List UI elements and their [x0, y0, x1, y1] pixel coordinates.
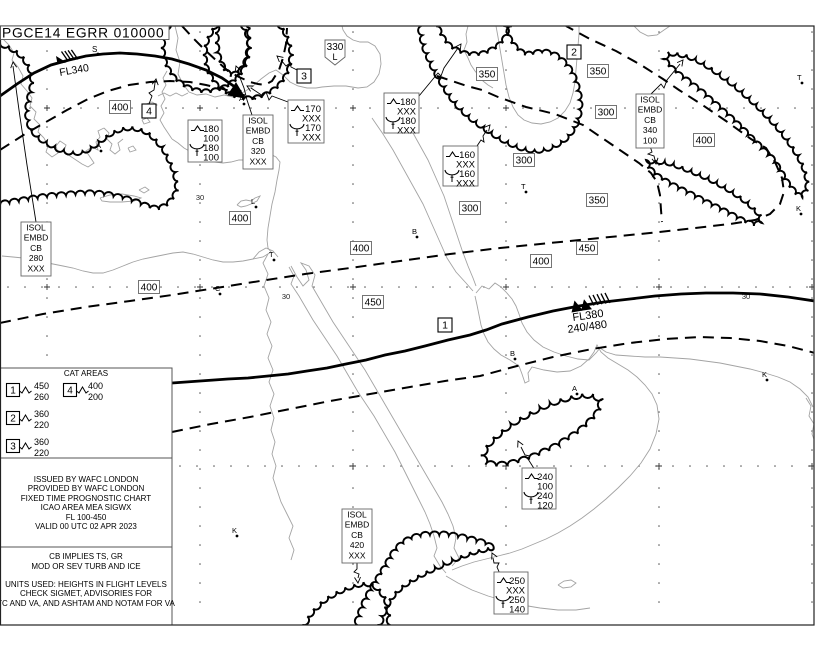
svg-text:ISSUED BY WAFC LONDON: ISSUED BY WAFC LONDON — [34, 475, 139, 484]
svg-text:4: 4 — [67, 386, 73, 397]
svg-text:400: 400 — [232, 214, 249, 225]
svg-text:400: 400 — [353, 244, 370, 255]
svg-text:360: 360 — [34, 409, 49, 419]
svg-text:220: 220 — [34, 448, 49, 458]
svg-text:300: 300 — [598, 108, 615, 119]
svg-text:T: T — [797, 73, 802, 82]
svg-text:320: 320 — [251, 146, 265, 156]
svg-text:100: 100 — [643, 136, 657, 146]
svg-text:B: B — [510, 349, 515, 358]
svg-text:S: S — [92, 45, 97, 54]
svg-text:FIXED TIME PROGNOSTIC CHART: FIXED TIME PROGNOSTIC CHART — [21, 494, 151, 503]
svg-text:K: K — [796, 204, 801, 213]
svg-text:ISOL: ISOL — [26, 222, 46, 232]
svg-text:140: 140 — [509, 605, 525, 616]
svg-text:TC AND VA, AND ASHTAM AND NOTA: TC AND VA, AND ASHTAM AND NOTAM FOR VA — [0, 599, 175, 608]
svg-text:EMBD: EMBD — [24, 233, 49, 243]
svg-text:450: 450 — [579, 244, 596, 255]
svg-text:CB: CB — [30, 243, 42, 253]
svg-text:400: 400 — [112, 103, 129, 114]
svg-text:CB IMPLIES TS, GR: CB IMPLIES TS, GR — [49, 552, 123, 561]
svg-text:XXX: XXX — [249, 157, 266, 167]
svg-text:280: 280 — [29, 253, 43, 263]
svg-text:300: 300 — [462, 204, 479, 215]
svg-text:400: 400 — [141, 283, 158, 294]
svg-text:420: 420 — [350, 540, 364, 550]
svg-text:PGCE14 EGRR 010000: PGCE14 EGRR 010000 — [2, 26, 164, 41]
svg-text:FL 100-450: FL 100-450 — [66, 513, 107, 522]
svg-text:1: 1 — [10, 386, 16, 397]
svg-text:B: B — [412, 227, 417, 236]
svg-text:360: 360 — [34, 437, 49, 447]
svg-text:30: 30 — [196, 193, 204, 202]
svg-text:UNITS USED: HEIGHTS IN FLIGHT: UNITS USED: HEIGHTS IN FLIGHT LEVELS — [5, 580, 167, 589]
svg-text:L: L — [332, 52, 337, 62]
svg-text:MOD OR SEV TURB AND ICE: MOD OR SEV TURB AND ICE — [31, 562, 140, 571]
svg-text:XXX: XXX — [456, 179, 476, 190]
svg-text:T: T — [269, 250, 274, 259]
svg-text:120: 120 — [537, 501, 553, 512]
svg-text:350: 350 — [589, 196, 606, 207]
svg-text:XXX: XXX — [348, 551, 365, 561]
svg-text:XXX: XXX — [397, 126, 417, 137]
svg-text:XXX: XXX — [302, 133, 322, 144]
svg-text:2: 2 — [571, 47, 577, 59]
svg-text:400: 400 — [696, 136, 713, 147]
svg-text:4: 4 — [146, 106, 152, 118]
svg-text:ISOL: ISOL — [640, 94, 660, 104]
svg-text:ISOL: ISOL — [347, 509, 367, 519]
svg-text:XXX: XXX — [27, 264, 44, 274]
svg-text:300: 300 — [516, 156, 533, 167]
svg-text:EMBD: EMBD — [638, 105, 663, 115]
svg-text:450: 450 — [365, 298, 382, 309]
svg-text:K: K — [232, 526, 237, 535]
svg-text:A: A — [239, 94, 244, 103]
svg-text:350: 350 — [590, 67, 607, 78]
svg-text:450: 450 — [34, 381, 49, 391]
svg-text:CB: CB — [351, 530, 363, 540]
svg-text:340: 340 — [643, 125, 657, 135]
svg-text:3: 3 — [10, 442, 16, 453]
svg-text:VALID 00 UTC 02 APR 2023: VALID 00 UTC 02 APR 2023 — [35, 522, 137, 531]
svg-text:350: 350 — [479, 70, 496, 81]
svg-text:EMBD: EMBD — [246, 126, 271, 136]
svg-text:A: A — [572, 384, 577, 393]
svg-text:A: A — [96, 141, 101, 150]
svg-text:CB: CB — [252, 136, 264, 146]
svg-text:C: C — [215, 284, 221, 293]
svg-text:CB: CB — [644, 115, 656, 125]
svg-text:260: 260 — [34, 392, 49, 402]
svg-text:ICAO AREA MEA SIGWX: ICAO AREA MEA SIGWX — [41, 503, 132, 512]
svg-text:3: 3 — [301, 71, 307, 83]
svg-text:EMBD: EMBD — [345, 520, 370, 530]
svg-text:PROVIDED BY WAFC LONDON: PROVIDED BY WAFC LONDON — [28, 484, 145, 493]
svg-text:220: 220 — [34, 420, 49, 430]
svg-text:K: K — [762, 370, 767, 379]
svg-text:400: 400 — [533, 257, 550, 268]
svg-text:1: 1 — [442, 320, 448, 332]
svg-text:ISOL: ISOL — [248, 115, 268, 125]
svg-text:2: 2 — [10, 414, 16, 425]
svg-text:100: 100 — [203, 153, 219, 164]
svg-text:30: 30 — [282, 292, 290, 301]
svg-text:T: T — [521, 182, 526, 191]
svg-text:CAT AREAS: CAT AREAS — [64, 369, 108, 378]
svg-text:CHECK SIGMET, ADVISORIES FOR: CHECK SIGMET, ADVISORIES FOR — [20, 589, 152, 598]
svg-text:200: 200 — [88, 392, 103, 402]
svg-text:400: 400 — [88, 381, 103, 391]
svg-text:L: L — [251, 197, 255, 206]
